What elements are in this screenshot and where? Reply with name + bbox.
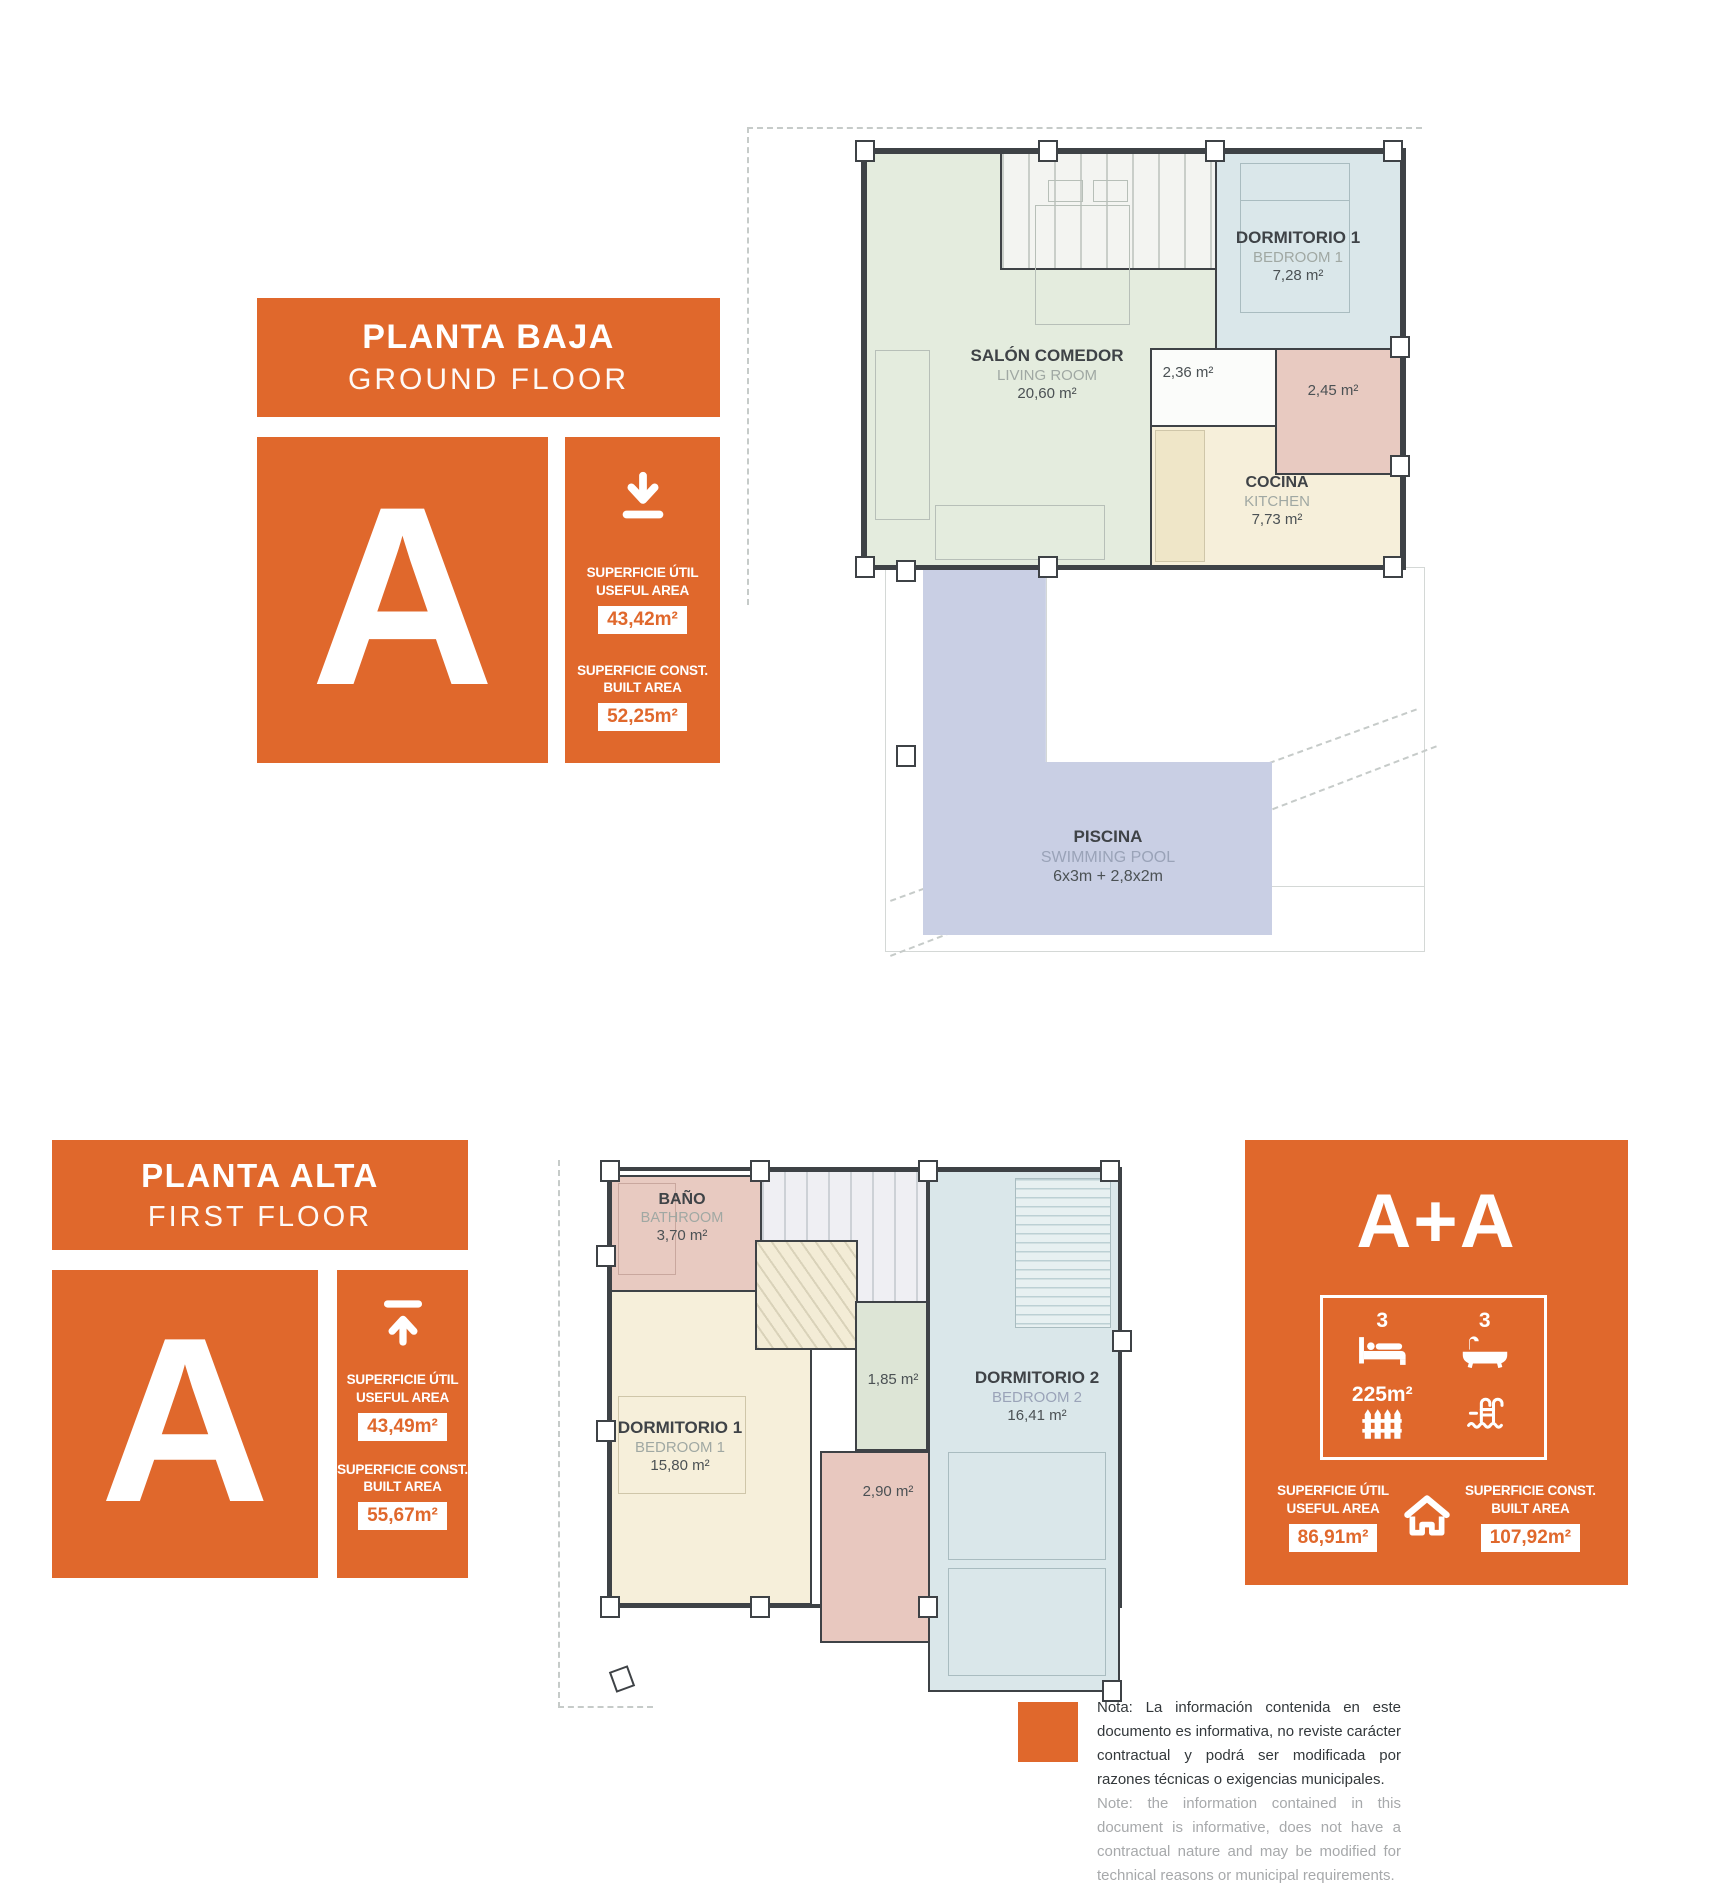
chair [1048,180,1083,202]
feature-pool [1462,1395,1508,1434]
first-floor-title-en: FIRST FLOOR [148,1201,372,1234]
note-color-square [1018,1702,1078,1762]
ground-floor-title-es: PLANTA BAJA [362,318,615,357]
unit-letter: A [257,437,548,757]
built-area-value: 52,25m² [598,703,687,731]
house-icon [1401,1490,1453,1543]
feature-bathrooms: 3 [1460,1310,1510,1373]
feature-bedrooms: 3 [1357,1310,1407,1373]
wall-pillar [918,1160,938,1182]
bed-outline [948,1568,1106,1676]
built-area-value: 55,67m² [358,1502,447,1530]
wall-pillar [609,1665,635,1693]
built-area-label-es: SUPERFICIE CONST. [577,662,708,680]
plot-size: 225m² [1352,1384,1413,1405]
wall-pillar [1383,140,1403,162]
unit-letter: A [52,1270,318,1570]
landing-area-label: 1,85 m² [868,1371,919,1389]
plot-dashed-line-left [747,127,749,605]
combo-panel: A+A 3 3 [1245,1140,1628,1585]
useful-area-value: 43,42m² [598,606,687,634]
combo-areas-row: SUPERFICIE ÚTIL USEFUL AREA 86,91m² SUPE… [1245,1482,1628,1552]
pillow-outline [1240,163,1350,201]
hall-area-label: 2,36 m² [1163,364,1214,382]
note-text-block: Nota: La información contenida en este d… [1097,1696,1401,1888]
first-floor-title-es: PLANTA ALTA [141,1157,379,1195]
upload-icon [374,1294,432,1357]
wall-pillar [855,140,875,162]
built-area-label-es: SUPERFICIE CONST. [337,1461,468,1479]
useful-area-label-en: USEFUL AREA [347,1389,459,1407]
bathtub-icon [1460,1334,1510,1373]
room-hall [1150,348,1277,427]
wall-pillar [750,1160,770,1182]
bedroom1-gf-label: DORMITORIO 1 BEDROOM 1 7,28 m² [1236,228,1360,285]
pool-label: PISCINA SWIMMING POOL 6x3m + 2,8x2m [1041,827,1175,887]
useful-area-value: 43,49m² [358,1413,447,1441]
note-spanish: Nota: La información contenida en este d… [1097,1696,1401,1792]
combo-useful-area: SUPERFICIE ÚTIL USEFUL AREA 86,91m² [1277,1482,1389,1552]
combo-title: A+A [1245,1184,1628,1260]
feature-plot: 225m² [1352,1384,1413,1445]
ground-floor-panel-header: PLANTA BAJA GROUND FLOOR [257,298,720,417]
wall-pillar [1205,140,1225,162]
built-area-label-en: BUILT AREA [577,679,708,697]
first-floor-letter-box: A [52,1270,318,1578]
wall-pillar [918,1596,938,1618]
kitchen-counter [1155,430,1205,562]
useful-area-value: 86,91m² [1289,1524,1378,1552]
ground-floor-letter-box: A [257,437,548,763]
wall-pillar [600,1596,620,1618]
useful-area-label-es: SUPERFICIE ÚTIL [587,564,699,582]
bath-gf-area-label: 2,45 m² [1308,382,1359,400]
wall-pillar [1383,556,1403,578]
sofa [935,505,1105,560]
useful-area-label-es: SUPERFICIE ÚTIL [347,1371,459,1389]
wall-pillar [596,1245,616,1267]
bedroom2-ff-label: DORMITORIO 2 BEDROOM 2 16,41 m² [975,1368,1099,1425]
plot-dashed-line-left-ff [558,1160,560,1708]
wall-pillar [855,556,875,578]
ground-floor-areas-box: SUPERFICIE ÚTIL USEFUL AREA 43,42m² SUPE… [565,437,720,763]
wall-pillar [1038,140,1058,162]
bathrooms-count: 3 [1479,1310,1491,1331]
chair [1093,180,1128,202]
features-box: 3 3 2 [1320,1295,1547,1460]
bed-outline [948,1452,1106,1560]
combo-built-area: SUPERFICIE CONST. BUILT AREA 107,92m² [1465,1482,1596,1552]
window-louvre [1015,1178,1111,1328]
bed-icon [1357,1334,1407,1373]
room-bath2-ff [820,1451,930,1643]
note-english: Note: the information contained in this … [1097,1792,1401,1888]
download-icon [612,467,674,534]
wall-pillar [896,560,916,582]
wall-pillar [1102,1680,1122,1702]
room-bath-gf [1275,348,1402,475]
plot-dashed-line-bottom-ff [558,1706,653,1708]
wall-pillar [600,1160,620,1182]
fence-icon [1359,1408,1405,1445]
kitchen-label: COCINA KITCHEN 7,73 m² [1244,473,1310,529]
bedrooms-count: 3 [1376,1310,1388,1331]
wall-pillar [750,1596,770,1618]
wall-pillar [1390,336,1410,358]
built-area-value: 107,92m² [1481,1524,1580,1552]
wall-pillar [1100,1160,1120,1182]
bedroom1-ff-label: DORMITORIO 1 BEDROOM 1 15,80 m² [618,1418,742,1475]
plot-dashed-line-top [747,127,1422,129]
pool-ladder-icon [1462,1395,1508,1434]
dining-table [1035,205,1130,325]
wall-pillar [896,745,916,767]
first-floor-areas-box: SUPERFICIE ÚTIL USEFUL AREA 43,49m² SUPE… [337,1270,468,1578]
wall-pillar [1038,556,1058,578]
living-room-label: SALÓN COMEDOR LIVING ROOM 20,60 m² [971,346,1124,403]
wall-pillar [1390,455,1410,477]
built-area-label-en: BUILT AREA [337,1478,468,1496]
ground-floor-title-en: GROUND FLOOR [348,363,629,397]
wall-pillar [1112,1330,1132,1352]
bath2-area-label: 2,90 m² [863,1483,914,1501]
closet [755,1240,858,1350]
bath-ff-label: BAÑO BATHROOM 3,70 m² [641,1190,724,1246]
sofa [875,350,930,520]
first-floor-panel-header: PLANTA ALTA FIRST FLOOR [52,1140,468,1250]
wall-pillar [596,1420,616,1442]
useful-area-label-en: USEFUL AREA [587,582,699,600]
